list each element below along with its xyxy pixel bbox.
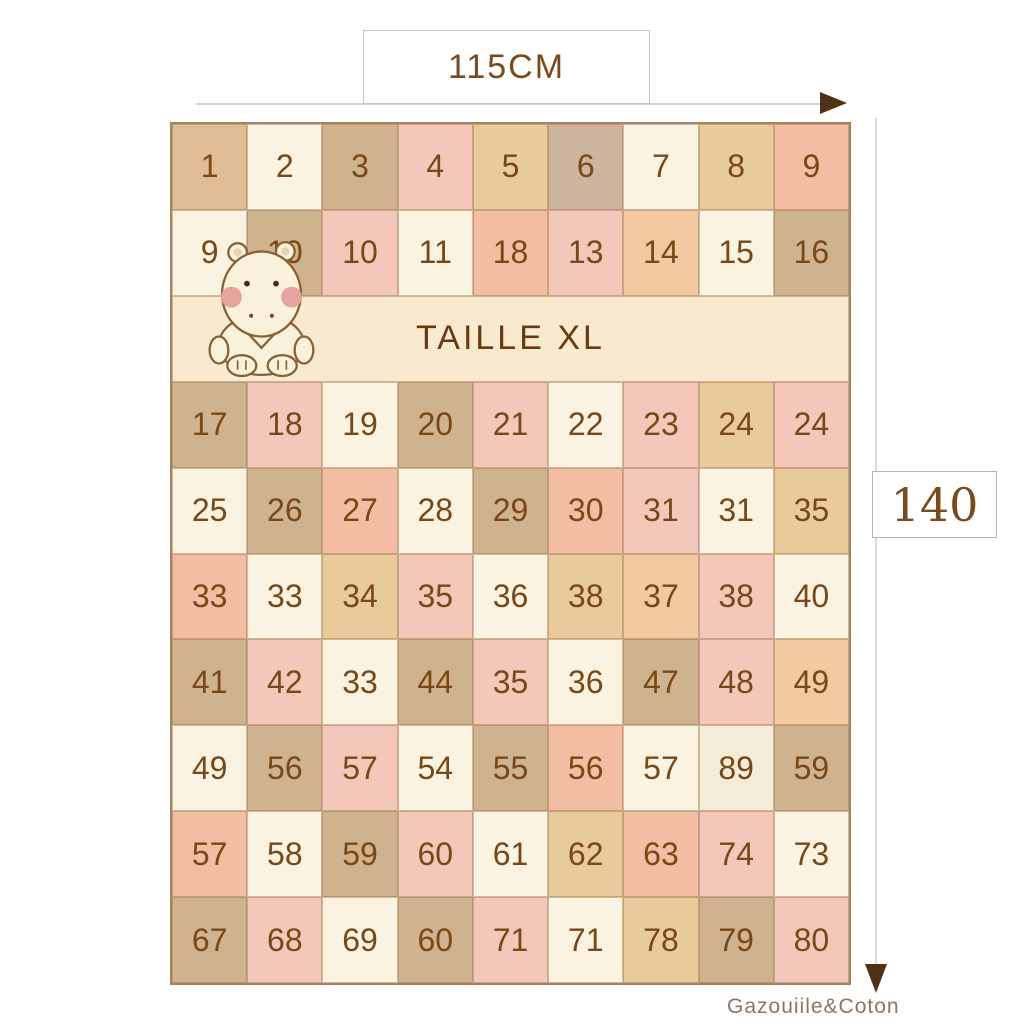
height-dimension-box: 140: [872, 471, 997, 538]
quilt-cell: 33: [322, 639, 397, 725]
quilt-cell: 24: [774, 382, 849, 468]
quilt-cell: 28: [398, 468, 473, 554]
quilt-cell: 3: [322, 124, 397, 210]
quilt-cell: 19: [322, 382, 397, 468]
quilt-cell: 78: [623, 897, 698, 983]
quilt-cell: 30: [548, 468, 623, 554]
width-dimension-box: 115CM: [363, 30, 650, 104]
height-dimension-label: 140: [891, 478, 979, 532]
quilt-cell: 36: [473, 554, 548, 640]
quilt-cell: 33: [172, 554, 247, 640]
quilt-cell: 13: [548, 210, 623, 296]
quilt-cell: 33: [247, 554, 322, 640]
quilt-cell: 71: [548, 897, 623, 983]
quilt-cell: 20: [398, 382, 473, 468]
quilt-cell: 63: [623, 811, 698, 897]
quilt-cell: 35: [774, 468, 849, 554]
quilt-cell: 80: [774, 897, 849, 983]
quilt-cell: 35: [398, 554, 473, 640]
quilt-cell: 58: [247, 811, 322, 897]
quilt-cell: 24: [699, 382, 774, 468]
quilt-cell: 67: [172, 897, 247, 983]
quilt-cell: 5: [473, 124, 548, 210]
height-dimension-line: [875, 118, 877, 968]
quilt-cell: 7: [623, 124, 698, 210]
quilt-cell: 40: [774, 554, 849, 640]
quilt-cell: 35: [473, 639, 548, 725]
arrow-down-icon: [865, 964, 887, 993]
quilt-cell: 18: [247, 382, 322, 468]
quilt-cell: 10: [322, 210, 397, 296]
width-dimension-label: 115CM: [448, 48, 565, 87]
quilt-cell: 14: [623, 210, 698, 296]
quilt-cell: 38: [699, 554, 774, 640]
quilt-cell: 27: [322, 468, 397, 554]
quilt-cell: 9: [774, 124, 849, 210]
quilt-cell: 89: [699, 725, 774, 811]
quilt-cell: 47: [623, 639, 698, 725]
quilt-cell: 29: [473, 468, 548, 554]
hippo-mascot-icon: [196, 238, 328, 378]
quilt-cell: 68: [247, 897, 322, 983]
quilt-cell: 61: [473, 811, 548, 897]
quilt-cell: 38: [548, 554, 623, 640]
quilt-cell: 71: [473, 897, 548, 983]
quilt-cell: 42: [247, 639, 322, 725]
quilt-cell: 15: [699, 210, 774, 296]
quilt-cell: 57: [172, 811, 247, 897]
arrow-right-icon: [820, 92, 847, 114]
brand-label: Gazouiile&Coton: [727, 995, 900, 1019]
quilt-cell: 48: [699, 639, 774, 725]
quilt-cell: 59: [774, 725, 849, 811]
quilt-cell: 49: [774, 639, 849, 725]
quilt-cell: 56: [548, 725, 623, 811]
quilt-cell: 26: [247, 468, 322, 554]
quilt-cell: 2: [247, 124, 322, 210]
quilt-cell: 57: [322, 725, 397, 811]
quilt-cell: 36: [548, 639, 623, 725]
quilt-cell: 11: [398, 210, 473, 296]
quilt-cell: 31: [623, 468, 698, 554]
quilt-cell: 56: [247, 725, 322, 811]
quilt-cell: 55: [473, 725, 548, 811]
quilt-cell: 18: [473, 210, 548, 296]
quilt-cell: 44: [398, 639, 473, 725]
quilt-cell: 34: [322, 554, 397, 640]
quilt-cell: 79: [699, 897, 774, 983]
quilt-cell: 54: [398, 725, 473, 811]
quilt-cell: 23: [623, 382, 698, 468]
quilt-cell: 4: [398, 124, 473, 210]
quilt-cell: 37: [623, 554, 698, 640]
quilt-cell: 1: [172, 124, 247, 210]
quilt-cell: 21: [473, 382, 548, 468]
quilt-cell: 25: [172, 468, 247, 554]
quilt-cell: 69: [322, 897, 397, 983]
quilt-cell: 6: [548, 124, 623, 210]
quilt-cell: 31: [699, 468, 774, 554]
quilt-cell: 57: [623, 725, 698, 811]
quilt-cell: 59: [322, 811, 397, 897]
quilt-cell: 17: [172, 382, 247, 468]
quilt-cell: 8: [699, 124, 774, 210]
quilt-cell: 60: [398, 811, 473, 897]
quilt-cell: 62: [548, 811, 623, 897]
quilt-cell: 73: [774, 811, 849, 897]
quilt-cell: 49: [172, 725, 247, 811]
quilt-cell: 74: [699, 811, 774, 897]
quilt-cell: 60: [398, 897, 473, 983]
quilt-cell: 22: [548, 382, 623, 468]
quilt-cell: 41: [172, 639, 247, 725]
quilt-cell: 16: [774, 210, 849, 296]
